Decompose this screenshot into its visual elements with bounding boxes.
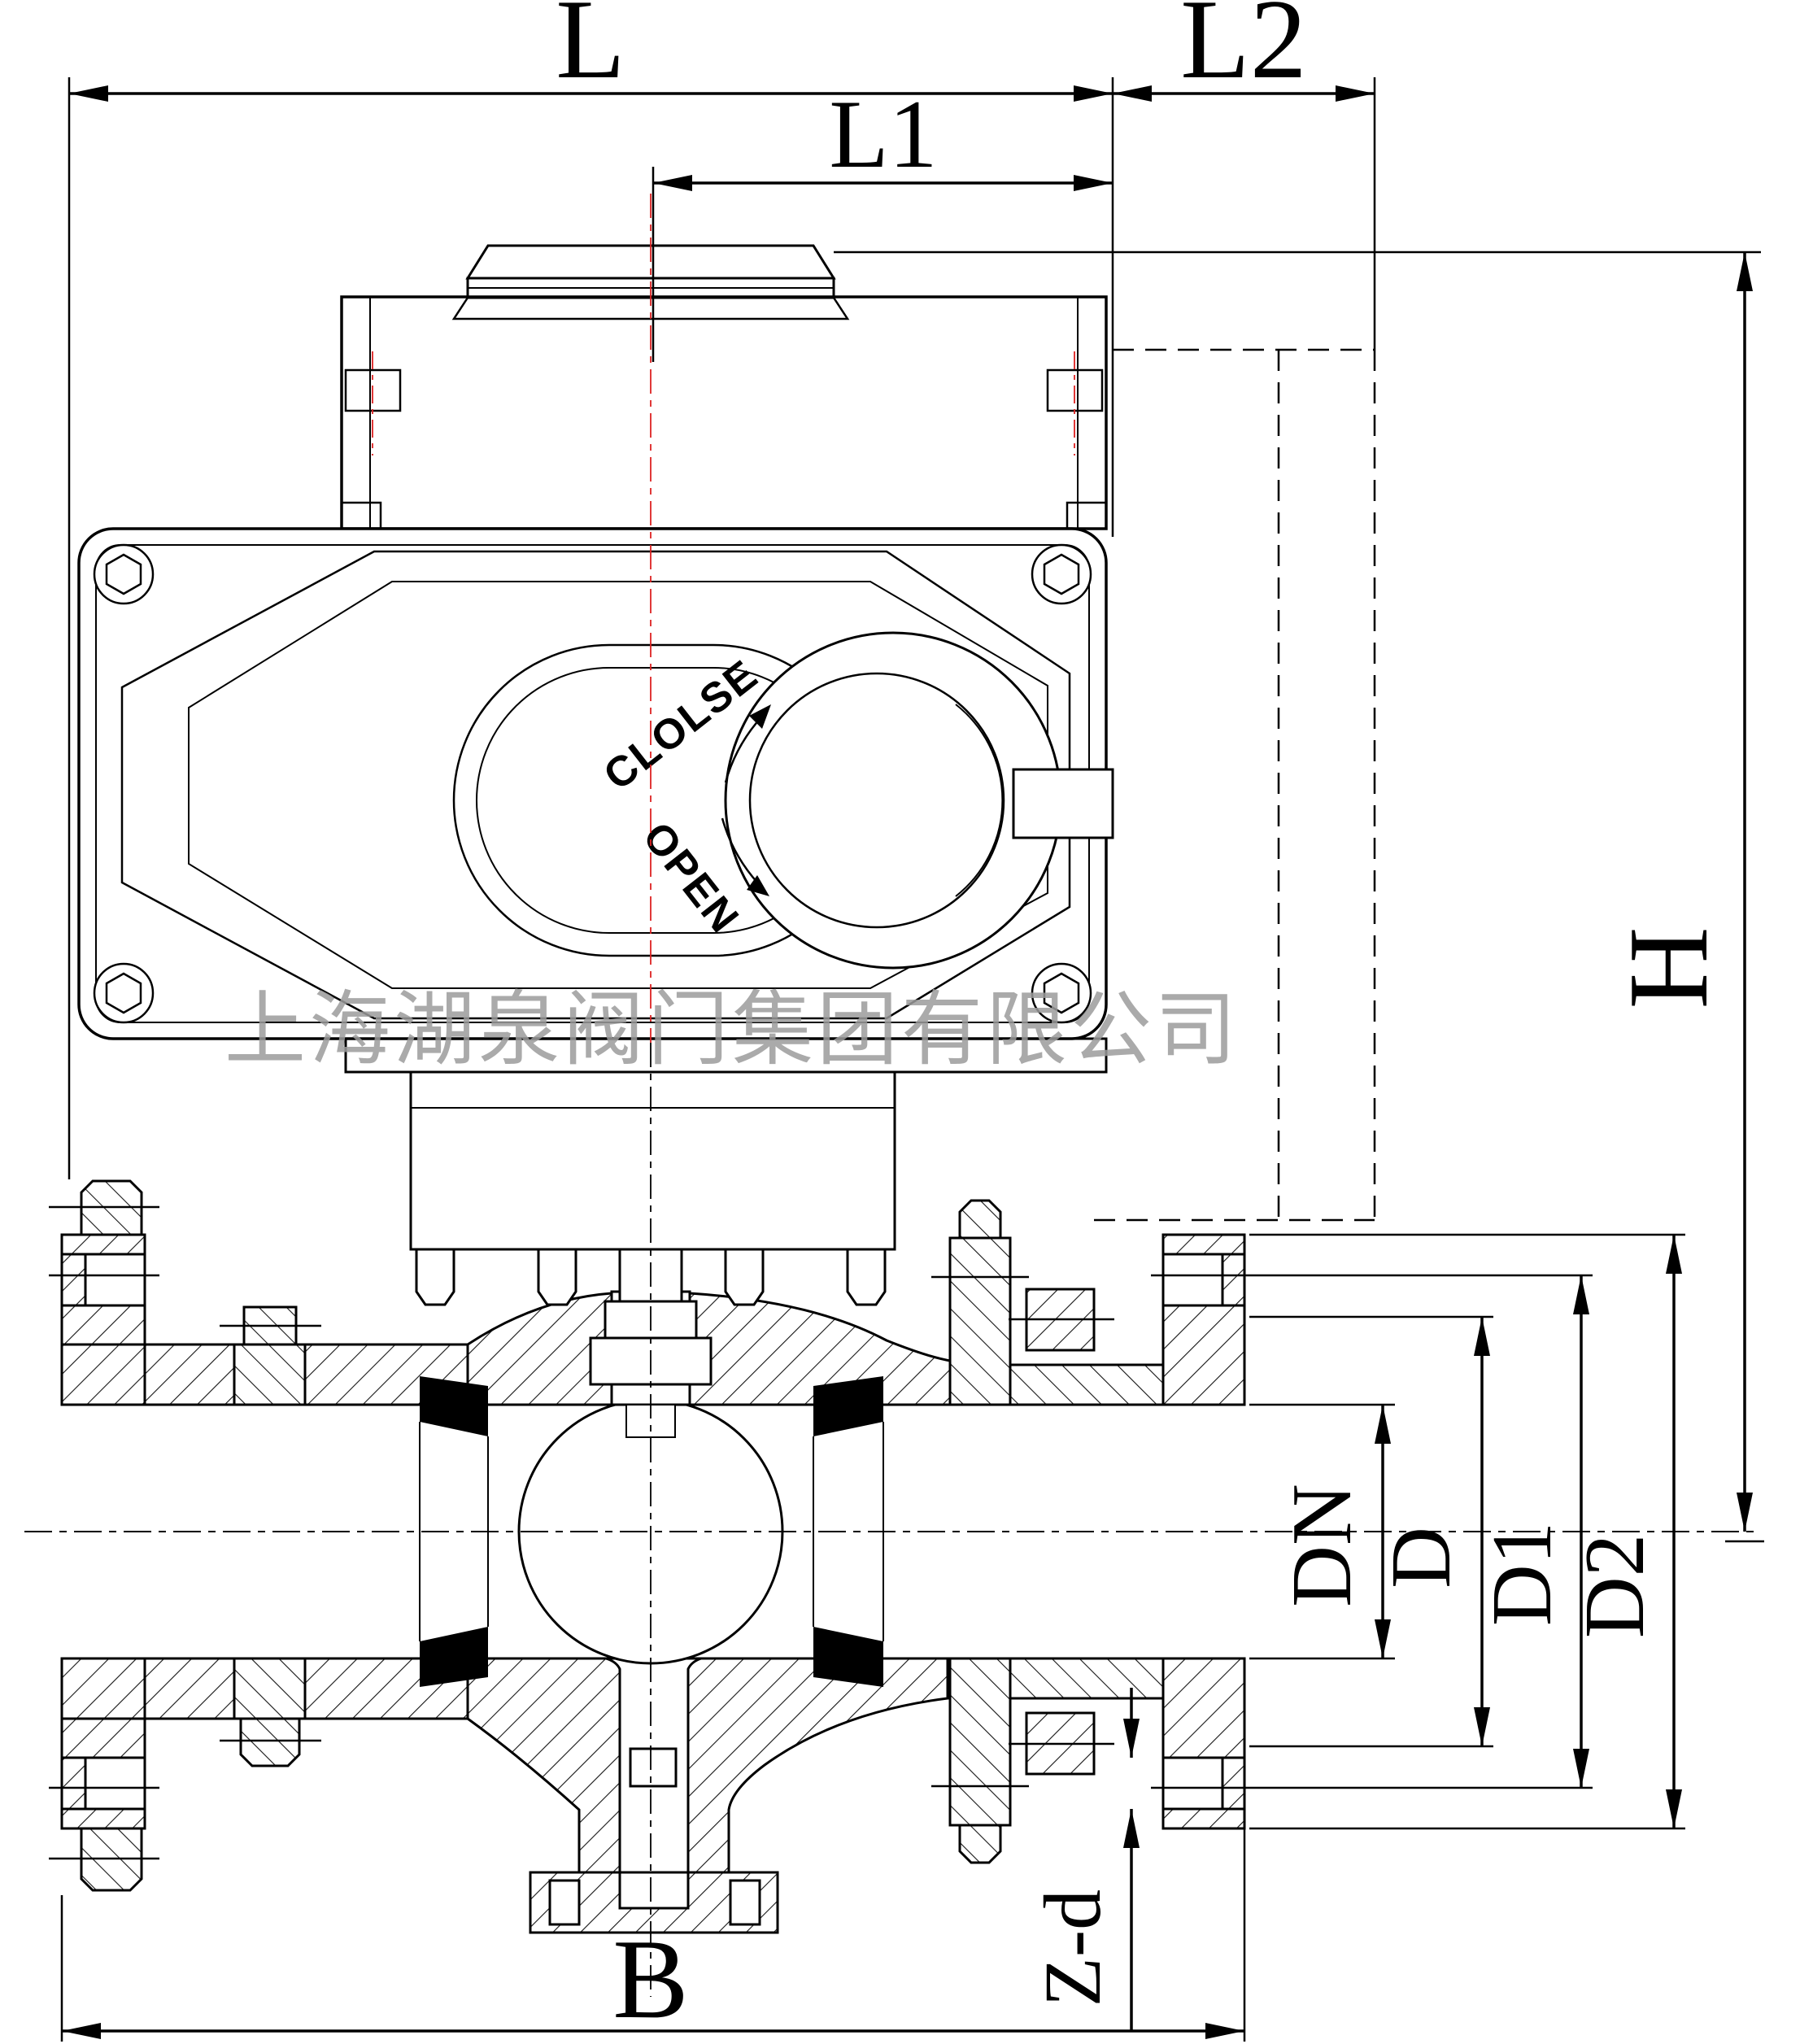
label-d2: D2	[1567, 1534, 1662, 1638]
label-b: B	[612, 1916, 688, 2042]
valve-drawing-svg: CLOLSE OPEN	[0, 0, 1813, 2044]
watermark-text: 上海湖泉阀门集团有限公司	[224, 982, 1240, 1077]
dial-inner	[750, 673, 1004, 927]
right-body-joint-top	[931, 1201, 1163, 1405]
label-h: H	[1606, 926, 1732, 1009]
label-d: D	[1373, 1527, 1468, 1589]
body-bottom-right	[688, 1658, 948, 1872]
terminal-box	[342, 246, 1106, 529]
dial-handle	[1013, 769, 1113, 838]
label-d1: D1	[1474, 1522, 1569, 1626]
label-dn: DN	[1274, 1484, 1369, 1607]
dimension-h	[1725, 252, 1764, 1541]
left-body-joint	[220, 1307, 321, 1766]
label-l2: L2	[1180, 0, 1307, 102]
label-zd: Z-d	[1027, 1889, 1118, 2007]
phantom-outline	[1094, 350, 1375, 1220]
actuator	[79, 246, 1113, 1039]
left-flange	[49, 1181, 159, 1890]
technical-drawing-page: CLOLSE OPEN	[0, 0, 1813, 2044]
label-l1: L1	[829, 80, 937, 188]
body-bottom-left	[468, 1658, 620, 1872]
label-l: L	[556, 0, 625, 102]
